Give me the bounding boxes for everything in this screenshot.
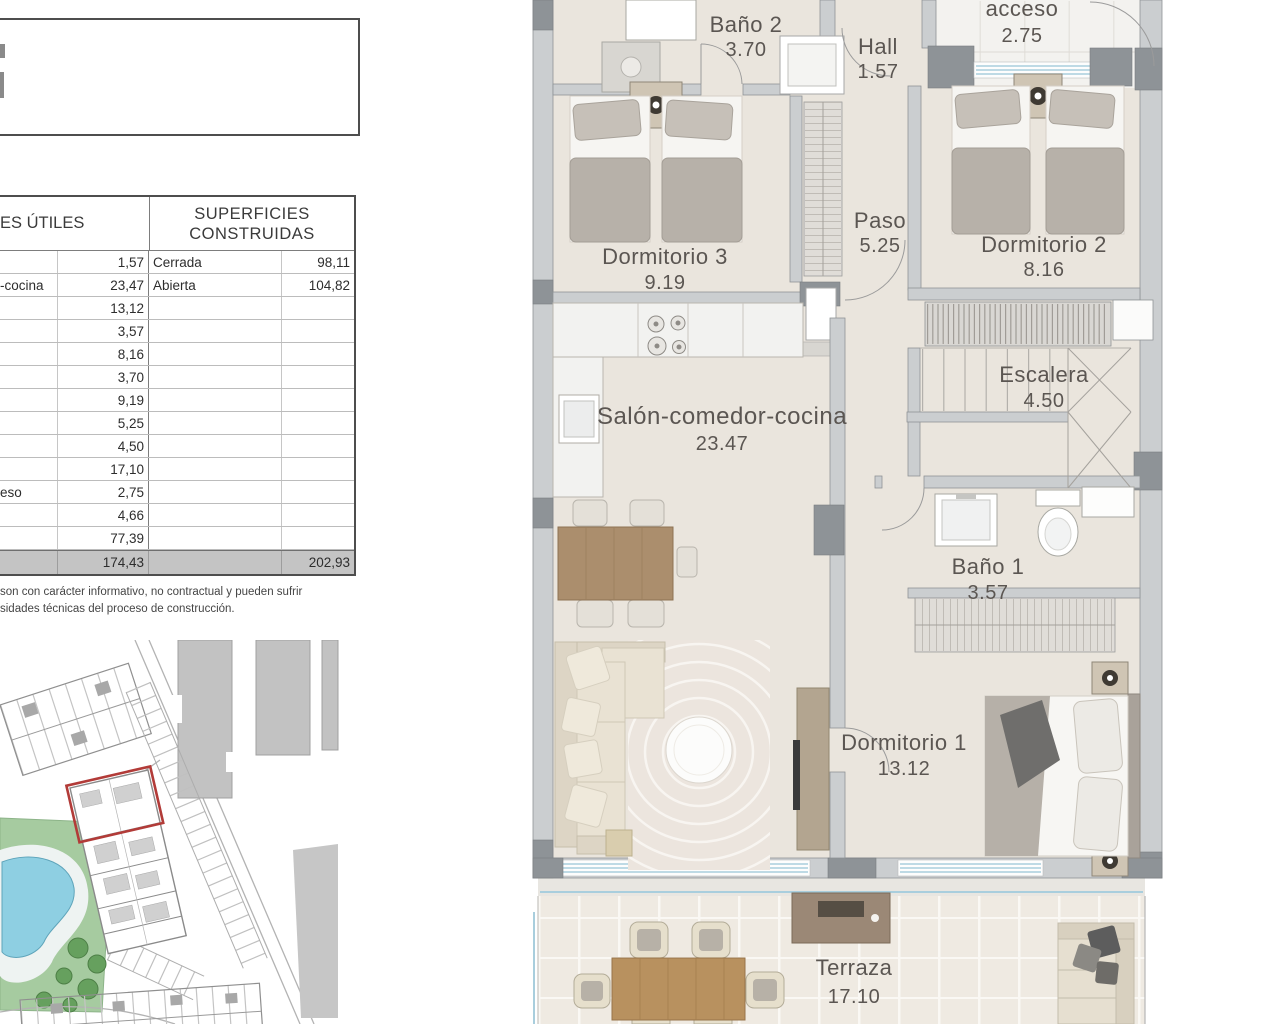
cell-ctype [149,435,282,457]
sink-icon [935,494,997,546]
terraced-block-top [0,663,151,775]
cell-area: 4,66 [58,504,149,526]
tv-icon [793,740,800,810]
table-row: 3,57 [0,320,354,343]
svg-text:Escalera: Escalera [999,362,1089,387]
cell-room [0,504,58,526]
svg-text:8.16: 8.16 [1024,259,1065,281]
pillow-icon [1049,89,1116,128]
site-plan [0,640,340,1024]
cell-area: 8,16 [58,343,149,365]
cell-carea [282,389,354,411]
cell-area: 3,70 [58,366,149,388]
cell-area: 5,25 [58,412,149,434]
pillow-icon [573,99,642,141]
cell-area: 77,39 [58,527,149,549]
cell-ctype [149,504,282,526]
cell-carea [282,366,354,388]
disclaimer-line1: son con carácter informativo, no contrac… [0,584,380,601]
cell-room [0,551,58,574]
svg-text:17.10: 17.10 [828,986,881,1008]
svg-text:Dormitorio 3: Dormitorio 3 [602,244,728,269]
chair-icon [677,547,697,577]
tv-unit [793,688,829,850]
cell-ctype [149,527,282,549]
cell-carea [282,481,354,503]
pillow-icon [665,100,733,141]
cell-room [0,366,58,388]
cell-area: 3,57 [58,320,149,342]
header-line1: SUPERFICIES [194,204,310,224]
cell-room [0,343,58,365]
cell-ctype [149,389,282,411]
table-row: 8,16 [0,343,354,366]
header-superficies-construidas: SUPERFICIES CONSTRUIDAS [150,197,354,250]
pillow-icon [955,89,1022,128]
svg-text:Baño 2: Baño 2 [710,12,783,37]
cell-carea: 104,82 [282,274,354,296]
table-row: 3,70 [0,366,354,389]
svg-text:Terraza: Terraza [816,955,893,980]
logo-fragment-icon [0,44,5,58]
logo-fragment-icon [0,72,4,98]
pillow-icon [1073,776,1123,852]
chair-icon [630,500,664,526]
svg-text:Paso: Paso [854,208,906,233]
terrace-sofa [1058,923,1134,1024]
total-utiles: 174,43 [58,551,149,574]
cell-area: 13,12 [58,297,149,319]
cell-area: 2,75 [58,481,149,503]
toilet-icon [1036,490,1080,556]
cell-room [0,251,58,273]
cell-carea [282,412,354,434]
total-construidas: 202,93 [282,551,354,574]
table-header-row: ES ÚTILES SUPERFICIES CONSTRUIDAS [0,197,354,251]
svg-text:2.75: 2.75 [1002,25,1043,47]
cell-area: 17,10 [58,458,149,480]
table-row: 17,10 [0,458,354,481]
disclaimer-line2: sidades técnicas del proceso de construc… [0,601,380,618]
cell-room [0,320,58,342]
svg-text:Dormitorio 2: Dormitorio 2 [981,232,1107,257]
logo-box [0,18,360,136]
cell-room [0,297,58,319]
svg-text:acceso: acceso [986,0,1059,21]
table-total-row: 174,43 202,93 [0,550,354,574]
cell-carea [282,343,354,365]
svg-text:13.12: 13.12 [878,758,931,780]
svg-text:3.57: 3.57 [968,582,1009,604]
cell-carea [282,297,354,319]
table-row: 1,57Cerrada98,11 [0,251,354,274]
washbasin-icon [621,57,641,77]
svg-text:1.57: 1.57 [858,61,899,83]
cell-area: 1,57 [58,251,149,273]
svg-text:9.19: 9.19 [645,272,686,294]
cell-carea [282,527,354,549]
room-label-paso: Paso 5.25 [854,208,906,257]
cell-carea: 98,11 [282,251,354,273]
svg-text:Salón-comedor-cocina: Salón-comedor-cocina [597,403,847,430]
wardrobe-icon [915,598,1115,652]
table-row: 5,25 [0,412,354,435]
cell-ctype [149,412,282,434]
cell-room [0,389,58,411]
cell-ctype [149,297,282,319]
svg-text:5.25: 5.25 [860,235,901,257]
terrace-sideboard [792,893,890,943]
disclaimer: son con carácter informativo, no contrac… [0,584,380,618]
cell-area: 9,19 [58,389,149,411]
cell-ctype [149,343,282,365]
coffee-table-icon [666,717,732,783]
table-row: 77,39 [0,527,354,550]
surfaces-table: ES ÚTILES SUPERFICIES CONSTRUIDAS 1,57Ce… [0,195,356,576]
cell-ctype [149,458,282,480]
cell-ctype [149,366,282,388]
svg-text:23.47: 23.47 [696,433,749,455]
chair-icon [628,600,664,627]
cell-ctype: Cerrada [149,251,282,273]
pillow-icon [1095,961,1119,985]
cell-room [0,412,58,434]
svg-text:Dormitorio 1: Dormitorio 1 [841,730,967,755]
room-label-hall: Hall 1.57 [858,34,899,83]
header-superficies-utiles: ES ÚTILES [0,197,150,250]
pillow-icon [1073,698,1123,774]
sink-icon [559,395,599,443]
cell-carea [282,435,354,457]
cell-ctype [149,320,282,342]
cell-ctype: Abierta [149,274,282,296]
svg-text:3.70: 3.70 [726,39,767,61]
table-row: 9,19 [0,389,354,412]
table-row: 13,12 [0,297,354,320]
chair-icon [577,600,613,627]
cell-area: 4,50 [58,435,149,457]
cell-room: -cocina [0,274,58,296]
cell-area: 23,47 [58,274,149,296]
table-row: -cocina23,47Abierta104,82 [0,274,354,297]
cell-room [0,527,58,549]
cell-ctype [149,481,282,503]
svg-text:Hall: Hall [858,34,898,59]
table-row: 4,66 [0,504,354,527]
wardrobe-icon [804,102,842,276]
cell-ctype [149,551,282,574]
svg-text:Baño 1: Baño 1 [952,554,1025,579]
cell-room: eso [0,481,58,503]
cell-room [0,435,58,457]
cell-carea [282,504,354,526]
table-row: 4,50 [0,435,354,458]
cell-carea [282,320,354,342]
floor-plan: Baño 2 3.70 Hall 1.57 acceso 2.75 Dormit… [530,0,1280,1024]
cell-room [0,458,58,480]
cell-carea [282,458,354,480]
chair-icon [573,500,607,526]
header-line2: CONSTRUIDAS [189,224,315,244]
gray-buildings [172,640,338,798]
svg-text:4.50: 4.50 [1024,390,1065,412]
table-row: eso2,75 [0,481,354,504]
